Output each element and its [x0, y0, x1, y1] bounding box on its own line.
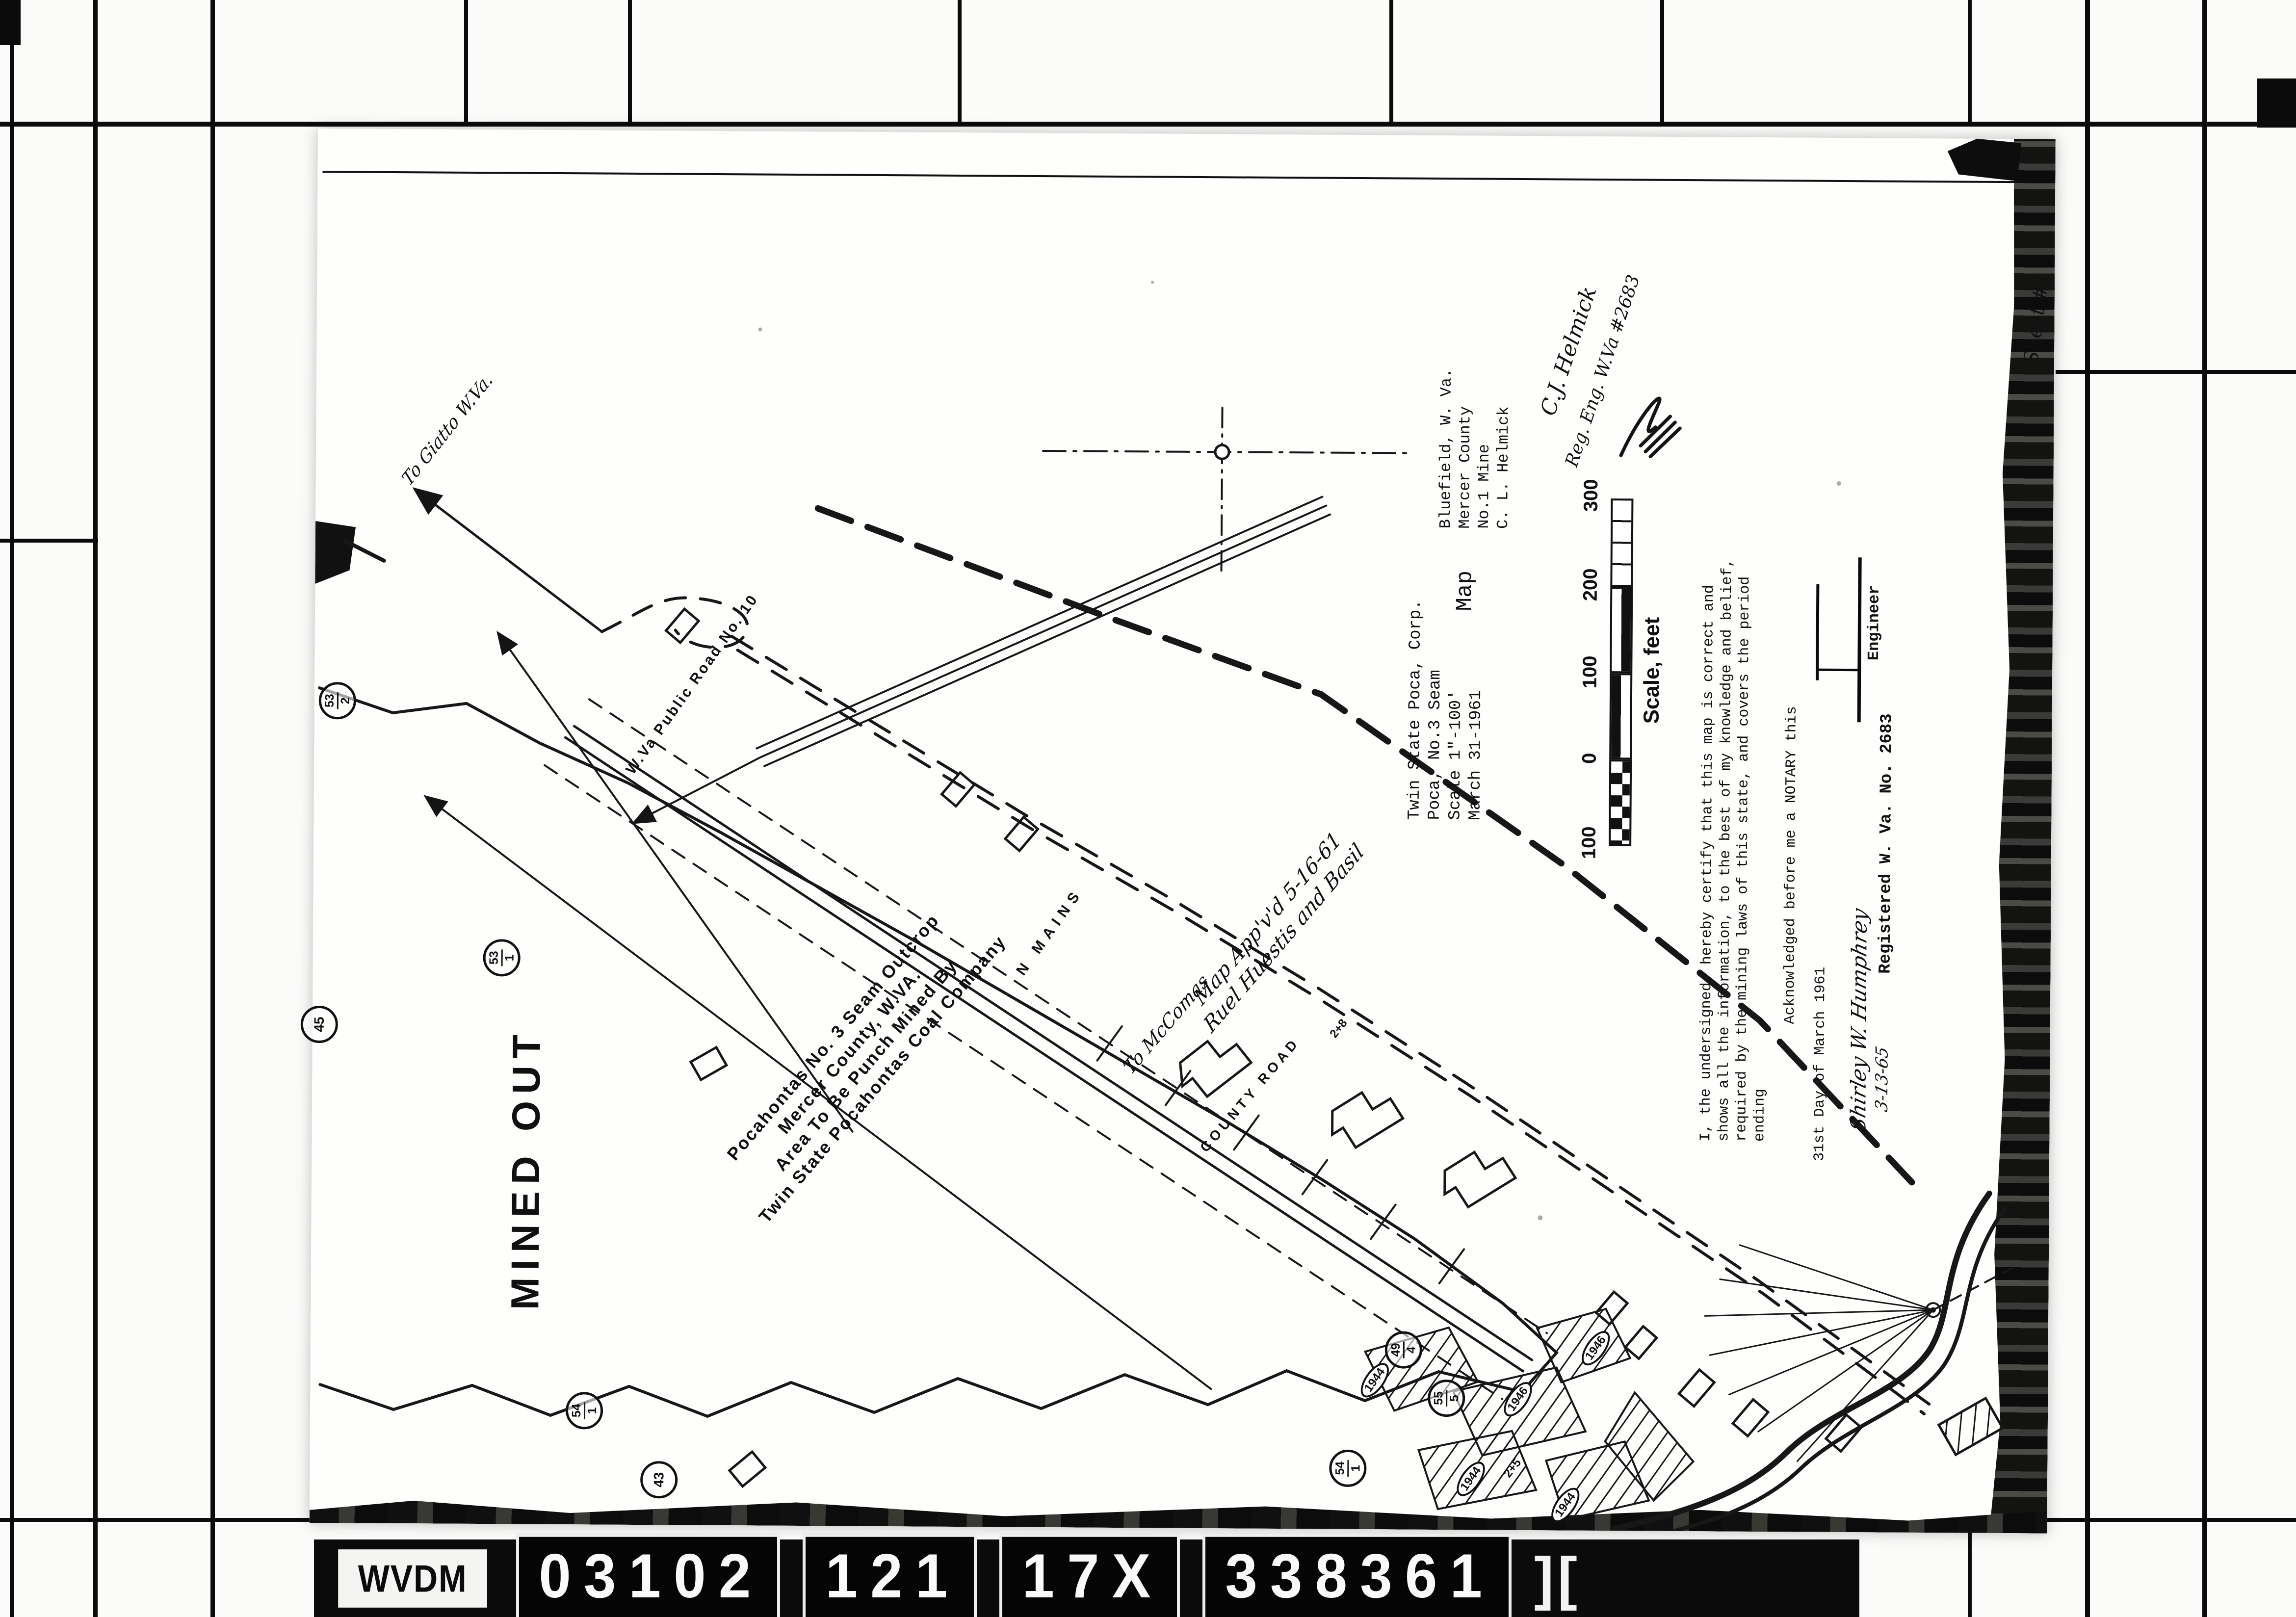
signature-flourish [1611, 382, 1690, 461]
scale-tick: 100 [1579, 655, 1601, 688]
scale-tick: 100 [1578, 826, 1600, 859]
notary-signature-line [1816, 584, 1819, 680]
title-company-block: Twin State Poca, Corp. Poca, No.3 Seam S… [1405, 600, 1487, 820]
scale-tick: 300 [1580, 479, 1602, 512]
grid-vline [2085, 0, 2090, 1617]
mined-out-label: MINED OUT [502, 1028, 549, 1310]
title-line: Twin State Poca, Corp. [1405, 600, 1426, 820]
title-line: Mercer County [1455, 368, 1475, 529]
certification-line: ending [1751, 559, 1773, 1142]
film-speck [758, 327, 762, 331]
grid-hseg-left [0, 539, 98, 543]
station-marker: 555 [1428, 1380, 1465, 1417]
film-end-mark: ][ [1534, 1544, 1581, 1612]
station-marker: 541 [1329, 1450, 1366, 1487]
title-line: No.1 Mine [1474, 368, 1494, 529]
map-sheet: Bluefield, W. Va. Mercer County No.1 Min… [310, 129, 2056, 1534]
scale-tick: 0 [1579, 753, 1601, 764]
film-code: 03102 [516, 1534, 780, 1617]
corner-blob [0, 0, 21, 45]
grid-vline [628, 0, 632, 126]
scale-bar-segment [1610, 587, 1633, 673]
notary-signature-date: 3-13-65 [1872, 1044, 1892, 1114]
grid-hseg-right [2056, 370, 2296, 374]
station-marker: 532 [319, 682, 356, 719]
station-marker: 531 [483, 939, 520, 976]
film-speck [1538, 1215, 1542, 1220]
certification-line: required by the mining laws of this stat… [1733, 559, 1754, 1142]
notary-signature: Shirley W. Humphrey [1846, 906, 1872, 1134]
engineer-label: Engineer [1865, 585, 1883, 660]
title-line: C. L. Helmick [1493, 368, 1513, 529]
station-marker: 494 [1385, 1331, 1422, 1368]
title-line: March 31-1961 [1466, 600, 1487, 820]
notary-ack-line: Acknowledged before me a NOTARY this [1782, 706, 1800, 1024]
grid-vline [2202, 0, 2207, 1617]
film-code: 338361 [1202, 1534, 1512, 1617]
grid-vline [93, 0, 98, 1617]
title-line: Scale 1"-100' [1445, 600, 1467, 820]
title-line: Bluefield, W. Va. [1436, 368, 1456, 529]
grid-vline [10, 0, 14, 1617]
station-marker: 45 [301, 1006, 338, 1043]
title-location-block: Bluefield, W. Va. Mercer County No.1 Min… [1436, 368, 1513, 529]
grid-vline [1389, 0, 1393, 126]
grid-vline [1968, 0, 1972, 126]
station-marker: 43 [640, 1461, 678, 1498]
scale-tick: 200 [1580, 568, 1602, 601]
film-speck [1837, 481, 1841, 486]
scale-bar-segment [1609, 759, 1632, 846]
film-speck [1151, 281, 1154, 284]
title-line: Poca, No.3 Seam [1425, 600, 1447, 820]
signature-connector-line [1817, 669, 1860, 672]
station-marker: 541 [566, 1392, 603, 1429]
grid-vline [210, 0, 215, 1617]
grid-vline [1660, 0, 1664, 126]
film-label-strip: WVDM 03102 121 17X 338361 ][ [314, 1539, 1859, 1617]
grid-vline [464, 0, 468, 126]
registration-number: Registered W. Va. No. 2683 [1877, 713, 1897, 974]
film-code: 17X [999, 1534, 1180, 1617]
notary-date-line: 31st Day of March 1961 [1811, 967, 1829, 1161]
grid-hline-top [0, 122, 2296, 127]
scale-bar-segment [1609, 673, 1632, 759]
grid-vline [958, 0, 962, 126]
archive-plate-label: WVDM [338, 1549, 487, 1608]
scale-bar-segment [1610, 498, 1633, 587]
scale-caption: Scale, feet [1640, 617, 1665, 724]
film-code: 121 [803, 1534, 977, 1617]
certification-block: I, the undersigned, hereby certify that … [1697, 558, 1773, 1142]
corner-blob [2257, 78, 2296, 128]
microfilm-frame: Bluefield, W. Va. Mercer County No.1 Min… [0, 0, 2296, 1617]
